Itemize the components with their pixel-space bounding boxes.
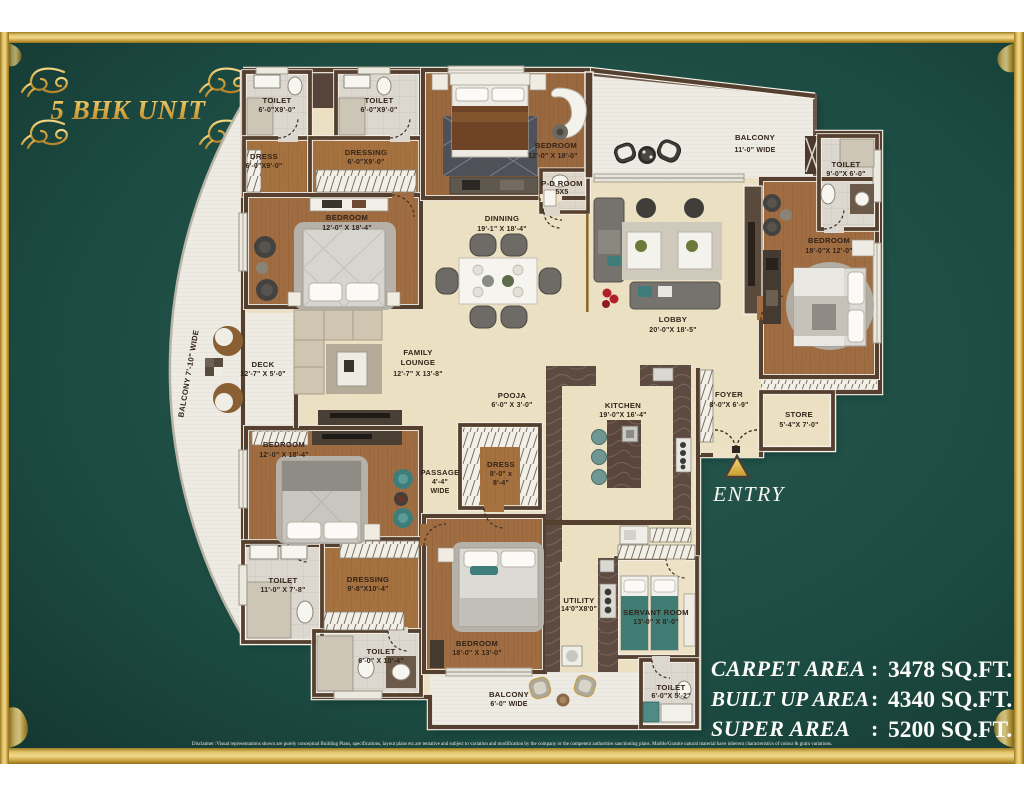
svg-text:6'-0"X9'-0": 6'-0"X9'-0" [360,107,397,114]
svg-text:18'-0" X 13'-0": 18'-0" X 13'-0" [452,650,502,657]
svg-text:6'-0" WIDE: 6'-0" WIDE [490,701,527,708]
svg-text:9'-0"X 6'-0": 9'-0"X 6'-0" [826,171,865,178]
svg-text:WIDE: WIDE [430,488,449,495]
svg-text:BEDROOM: BEDROOM [535,141,577,150]
svg-text:6'-0" X 3'-0": 6'-0" X 3'-0" [491,402,532,409]
svg-text:19'-1" X 18'-4": 19'-1" X 18'-4" [477,226,527,233]
svg-text:KITCHEN: KITCHEN [605,401,641,410]
svg-text:12'-0" X 18'-0": 12'-0" X 18'-0" [528,153,578,160]
svg-text:8'-0"X 6'-9": 8'-0"X 6'-9" [709,402,748,409]
svg-text:14'0"X8'0": 14'0"X8'0" [561,606,597,613]
svg-text:BALCONY: BALCONY [735,133,775,142]
svg-text:DRESS: DRESS [487,460,515,469]
svg-text:UTILITY: UTILITY [563,596,594,605]
svg-text:8'-0" x: 8'-0" x [490,471,512,478]
svg-text:BEDROOM: BEDROOM [263,440,305,449]
svg-text:18'-0"X 12'-0": 18'-0"X 12'-0" [805,248,852,255]
svg-text:ENTRY: ENTRY [712,482,785,506]
svg-text:BEDROOM: BEDROOM [808,236,850,245]
svg-text:19'-0"X 16'-4": 19'-0"X 16'-4" [599,412,646,419]
svg-text:TOILET: TOILET [365,96,394,105]
svg-text:6'-0"X9'-0": 6'-0"X9'-0" [347,159,384,166]
svg-text:5X5: 5X5 [555,189,568,196]
svg-text:BUILT UP AREA: BUILT UP AREA [710,687,869,711]
svg-text:TOILET: TOILET [367,647,396,656]
svg-text:9'-8"X10'-4": 9'-8"X10'-4" [347,586,388,593]
svg-text:12'-0" X 18'-4": 12'-0" X 18'-4" [322,225,372,232]
svg-text:BALCONY: BALCONY [489,690,529,699]
svg-text:SUPER AREA: SUPER AREA [711,716,850,741]
svg-text:DECK: DECK [252,360,275,369]
svg-text:6'-0"X9'-0": 6'-0"X9'-0" [245,163,282,170]
svg-text:20'-0"X 18'-5": 20'-0"X 18'-5" [649,327,696,334]
svg-text:LOUNGE: LOUNGE [401,358,436,367]
svg-text::: : [871,656,878,681]
svg-text:FAMILY: FAMILY [403,348,432,357]
svg-text:DRESSING: DRESSING [345,148,388,157]
svg-text:PASSAGE: PASSAGE [420,468,459,477]
svg-text::: : [871,716,878,741]
svg-text:4340 SQ.FT.: 4340 SQ.FT. [888,687,1012,713]
svg-text:6'-0" X 10'-4": 6'-0" X 10'-4" [358,658,403,665]
svg-text:11'-0" WIDE: 11'-0" WIDE [734,147,775,154]
svg-text:13'-0" X 8'-0": 13'-0" X 8'-0" [633,619,678,626]
svg-text:SERVANT ROOM: SERVANT ROOM [623,608,689,617]
svg-text:3478 SQ.FT.: 3478 SQ.FT. [888,657,1012,683]
svg-text:TOILET: TOILET [269,576,298,585]
svg-text:TOILET: TOILET [657,683,686,692]
svg-text:LOBBY: LOBBY [659,315,687,324]
svg-text:5'-4"X 7'-0": 5'-4"X 7'-0" [779,422,818,429]
svg-text:5200 SQ.FT.: 5200 SQ.FT. [888,717,1012,743]
svg-text:6'-0"X9'-0": 6'-0"X9'-0" [258,107,295,114]
svg-text:12'-7" X 5'-0": 12'-7" X 5'-0" [240,371,285,378]
svg-text:POOJA: POOJA [498,391,527,400]
svg-text:11'-0" X 7'-8": 11'-0" X 7'-8" [260,587,305,594]
svg-text:BEDROOM: BEDROOM [456,639,498,648]
svg-text:DRESS: DRESS [250,152,278,161]
svg-text:P-D ROOM: P-D ROOM [541,179,583,188]
svg-text:4'-4": 4'-4" [432,479,448,486]
svg-text::: : [871,686,878,711]
svg-text:FOYER: FOYER [715,390,743,399]
svg-text:12'-0" X 18'-4": 12'-0" X 18'-4" [259,452,309,459]
svg-text:STORE: STORE [785,410,813,419]
svg-text:CARPET AREA: CARPET AREA [711,656,865,681]
svg-text:BEDROOM: BEDROOM [326,213,368,222]
svg-text:TOILET: TOILET [832,160,861,169]
svg-text:Disclaimer :Visual representat: Disclaimer :Visual representations shown… [192,742,832,747]
svg-text:TOILET: TOILET [263,96,292,105]
svg-text:6'-0"X 5'-2": 6'-0"X 5'-2" [651,693,690,700]
svg-text:DRESSING: DRESSING [347,575,390,584]
svg-text:8'-4": 8'-4" [493,480,509,487]
svg-text:12'-7" X 13'-8": 12'-7" X 13'-8" [393,371,443,378]
svg-text:DINNING: DINNING [485,214,520,223]
svg-text:5 BHK UNIT: 5 BHK UNIT [50,95,206,125]
